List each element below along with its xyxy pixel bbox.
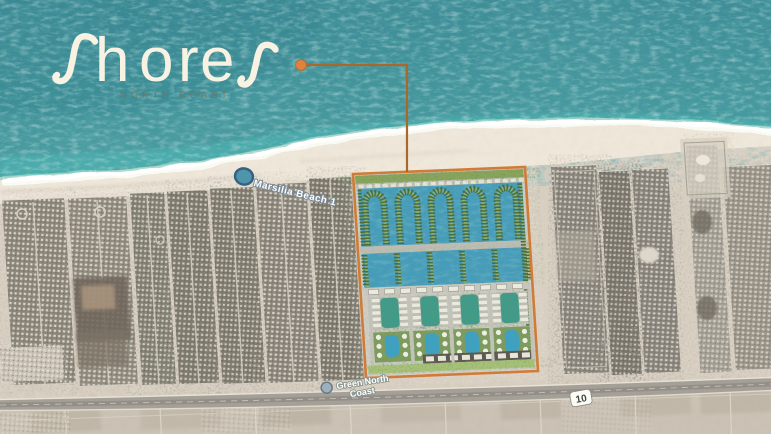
svg-text:NORTH COAST: NORTH COAST bbox=[120, 90, 231, 101]
svg-text:r: r bbox=[178, 26, 199, 95]
svg-text:e: e bbox=[200, 26, 234, 95]
svg-text:o: o bbox=[139, 26, 173, 95]
svg-text:h: h bbox=[95, 26, 129, 95]
